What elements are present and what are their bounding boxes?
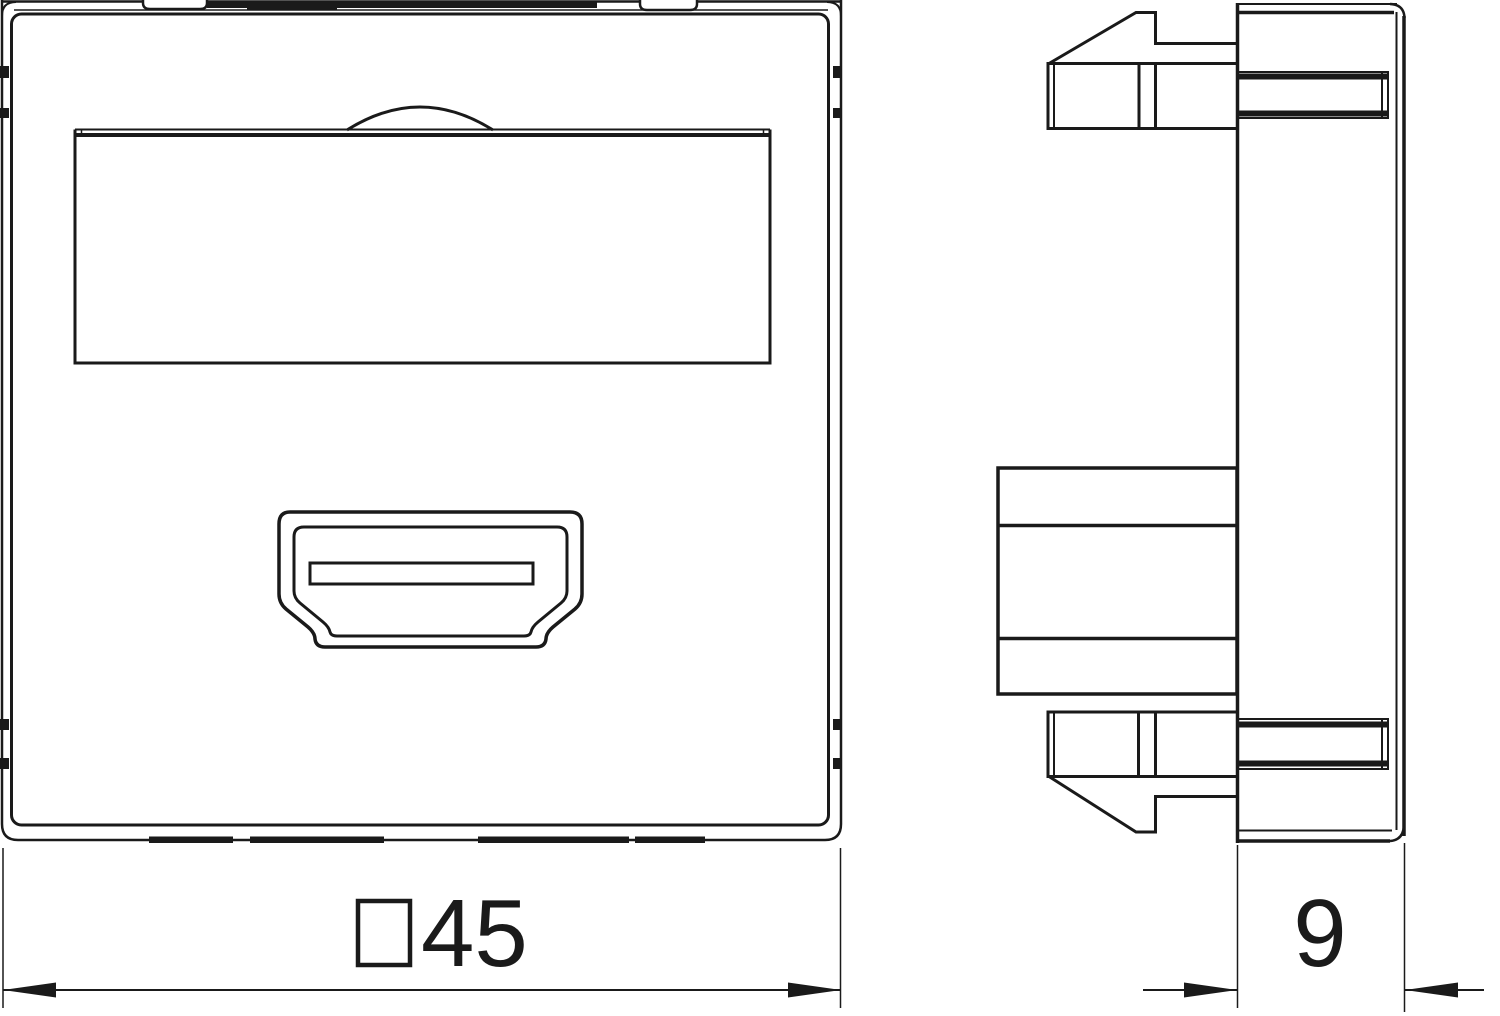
label-field xyxy=(75,107,770,363)
hdmi-outer-outline xyxy=(279,512,582,647)
connector-housing xyxy=(998,468,1237,694)
top-release-tab xyxy=(143,0,207,9)
dimension-arrow-left xyxy=(3,983,56,998)
hdmi-port xyxy=(279,512,582,647)
side-view xyxy=(998,3,1405,843)
side-latch-teeth xyxy=(0,66,842,769)
faceplate-outer-contour xyxy=(2,0,841,840)
front-view xyxy=(0,0,842,843)
dimension-arrow-inward-left xyxy=(1184,983,1237,998)
square-dimension-symbol xyxy=(358,901,410,965)
latching-rail-bottom xyxy=(1237,719,1388,769)
claw-hook-bottom xyxy=(1049,777,1237,833)
technical-drawing: 45 xyxy=(0,0,1500,1016)
front-width-dimension: 45 xyxy=(3,848,841,1008)
plate-profile xyxy=(1237,3,1405,843)
mounting-claw-top xyxy=(1048,13,1237,129)
latching-rail-top xyxy=(1237,72,1388,118)
top-latch-notch xyxy=(640,0,697,10)
hdmi-pin-slot xyxy=(310,563,533,584)
side-depth-dimension: 9 xyxy=(1143,843,1484,1012)
dimension-arrow-right xyxy=(788,983,841,998)
technical-drawing-page: 45 xyxy=(0,0,1500,1016)
finger-recess-arc xyxy=(347,107,493,130)
side-depth-dimension-text: 9 xyxy=(1293,880,1346,987)
front-width-dimension-text: 45 xyxy=(421,880,528,987)
claw-hook-top xyxy=(1049,13,1237,64)
mounting-claw-bottom xyxy=(1048,712,1237,832)
dimension-arrow-inward-right xyxy=(1405,983,1458,998)
hdmi-inner-outline xyxy=(294,527,567,636)
